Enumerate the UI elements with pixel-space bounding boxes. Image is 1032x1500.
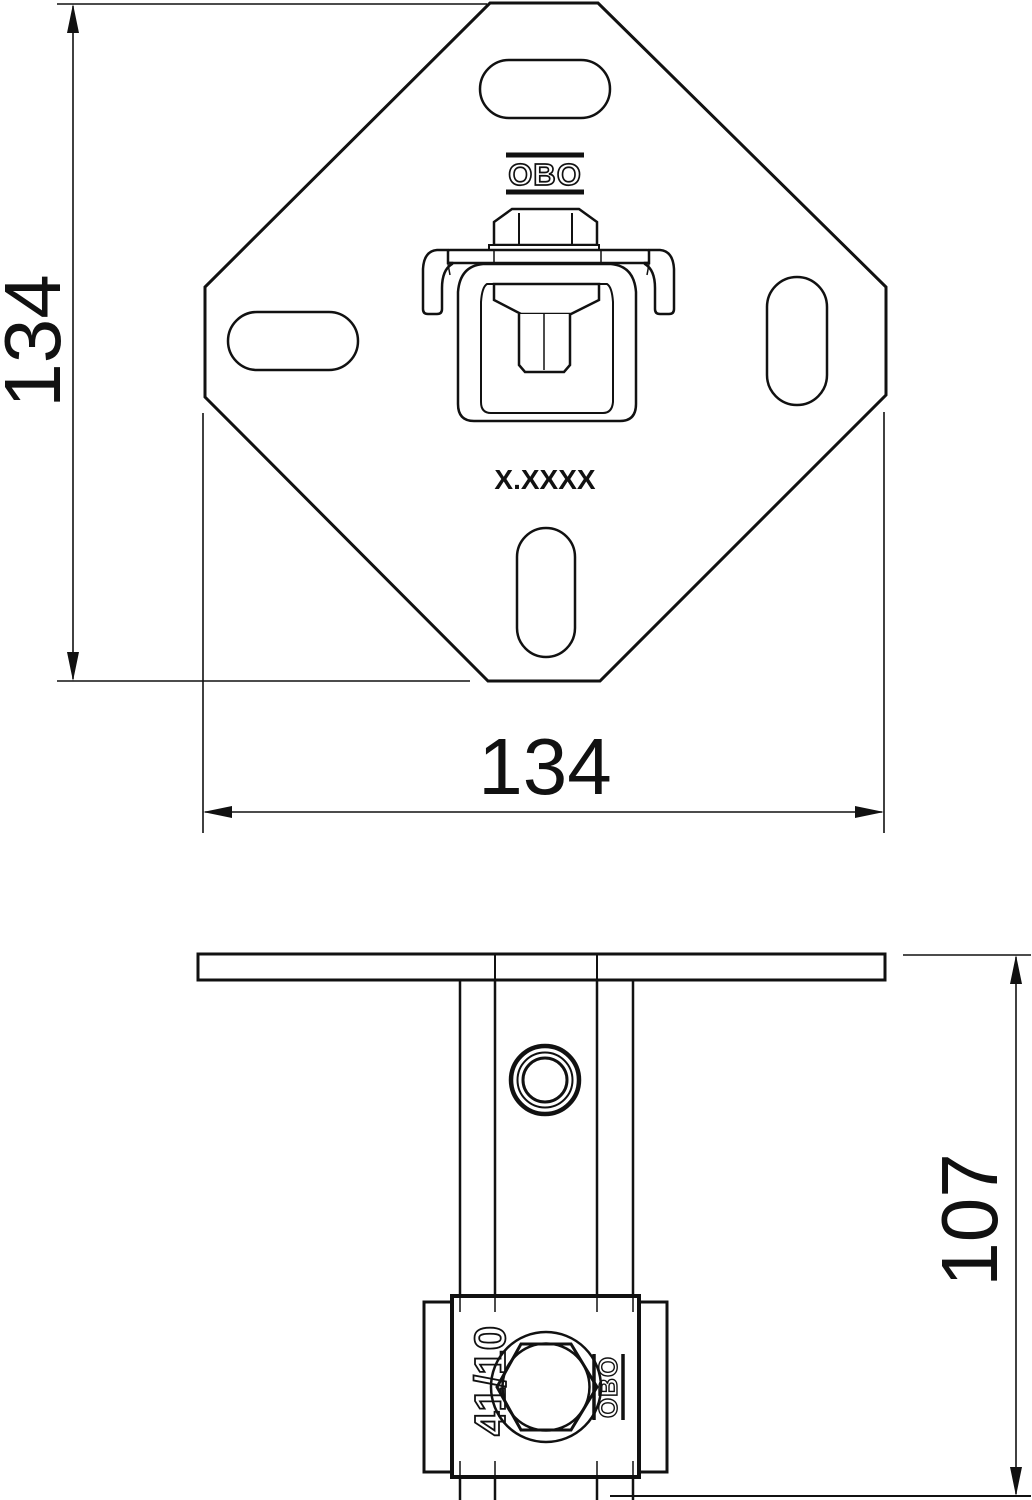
dim-107-label: 107	[925, 1153, 1014, 1286]
clamp-flange-left	[424, 1302, 452, 1472]
arrowhead-right	[855, 806, 884, 818]
part-marking: X.XXXX	[494, 464, 595, 495]
side-view: 41/10 OBO	[198, 954, 885, 1500]
obo-logo-side: OBO	[593, 1354, 623, 1420]
slot-hole-left	[228, 312, 358, 370]
obo-logo-top: OBO	[506, 155, 584, 192]
claw-hook-right	[645, 250, 674, 314]
obo-logo-side-text: OBO	[593, 1356, 623, 1418]
slot-hole-bottom	[517, 528, 575, 657]
clamp-block: 41/10 OBO	[424, 1296, 667, 1477]
bolt-shaft	[519, 314, 570, 372]
dimension-height-107: 107	[610, 955, 1031, 1496]
clamp-flange-right	[639, 1302, 667, 1472]
top-view: OBO X	[205, 3, 886, 681]
arrowhead-up	[1010, 955, 1022, 984]
hex-bolt-head	[489, 209, 599, 253]
drawing-sheet: OBO X	[0, 0, 1032, 1500]
arrowhead-down	[67, 652, 79, 681]
dim-height-label: 134	[0, 274, 77, 407]
slot-hole-right	[767, 277, 827, 405]
dim-width-label: 134	[478, 722, 611, 811]
flange-plate	[198, 954, 885, 980]
arrowhead-down	[1010, 1467, 1022, 1496]
arrowhead-up	[67, 4, 79, 33]
obo-logo-top-text: OBO	[508, 157, 582, 192]
dimension-height-134: 134	[0, 4, 487, 681]
ring-hole	[511, 1046, 579, 1114]
claw-hook-left	[423, 250, 452, 314]
arrowhead-left	[203, 806, 232, 818]
slot-hole-top	[480, 60, 610, 118]
clamp-size-marking: 41/10	[466, 1326, 515, 1436]
